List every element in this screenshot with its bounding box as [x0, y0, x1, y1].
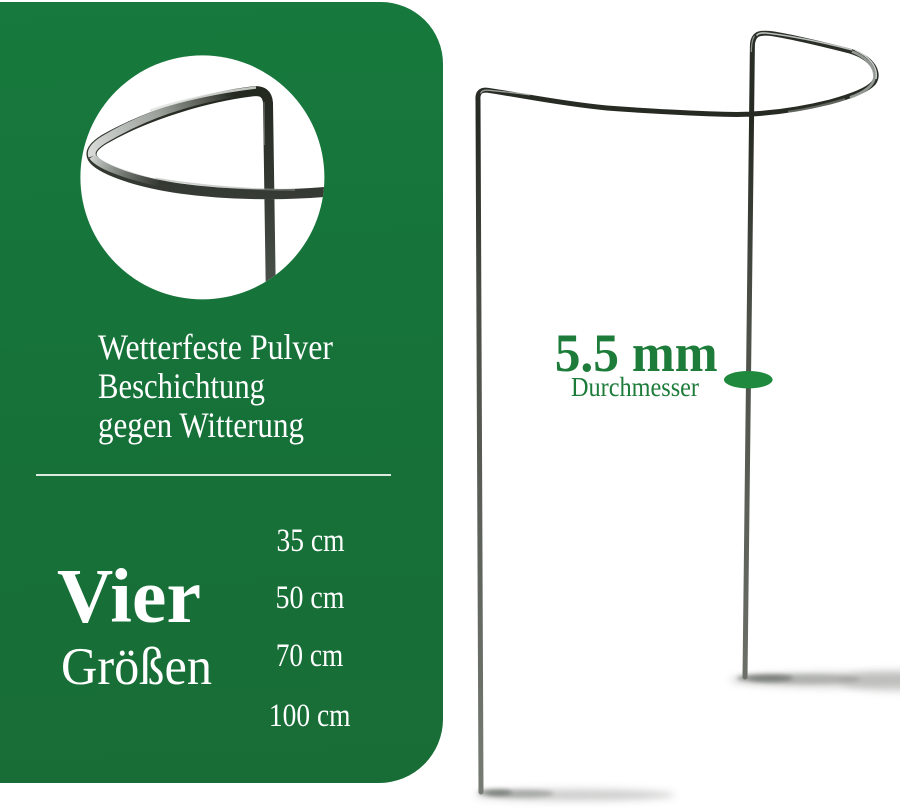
- svg-text:70 cm: 70 cm: [276, 638, 344, 674]
- svg-text:100 cm: 100 cm: [269, 698, 351, 734]
- svg-text:Wetterfeste Pulver: Wetterfeste Pulver: [98, 327, 333, 367]
- svg-text:gegen Witterung: gegen Witterung: [98, 405, 304, 445]
- svg-text:Vier: Vier: [57, 553, 201, 639]
- svg-text:Beschichtung: Beschichtung: [98, 366, 265, 406]
- svg-text:50 cm: 50 cm: [276, 580, 345, 616]
- svg-text:35 cm: 35 cm: [277, 523, 345, 559]
- svg-text:Größen: Größen: [61, 638, 212, 696]
- svg-text:Durchmesser: Durchmesser: [571, 371, 699, 402]
